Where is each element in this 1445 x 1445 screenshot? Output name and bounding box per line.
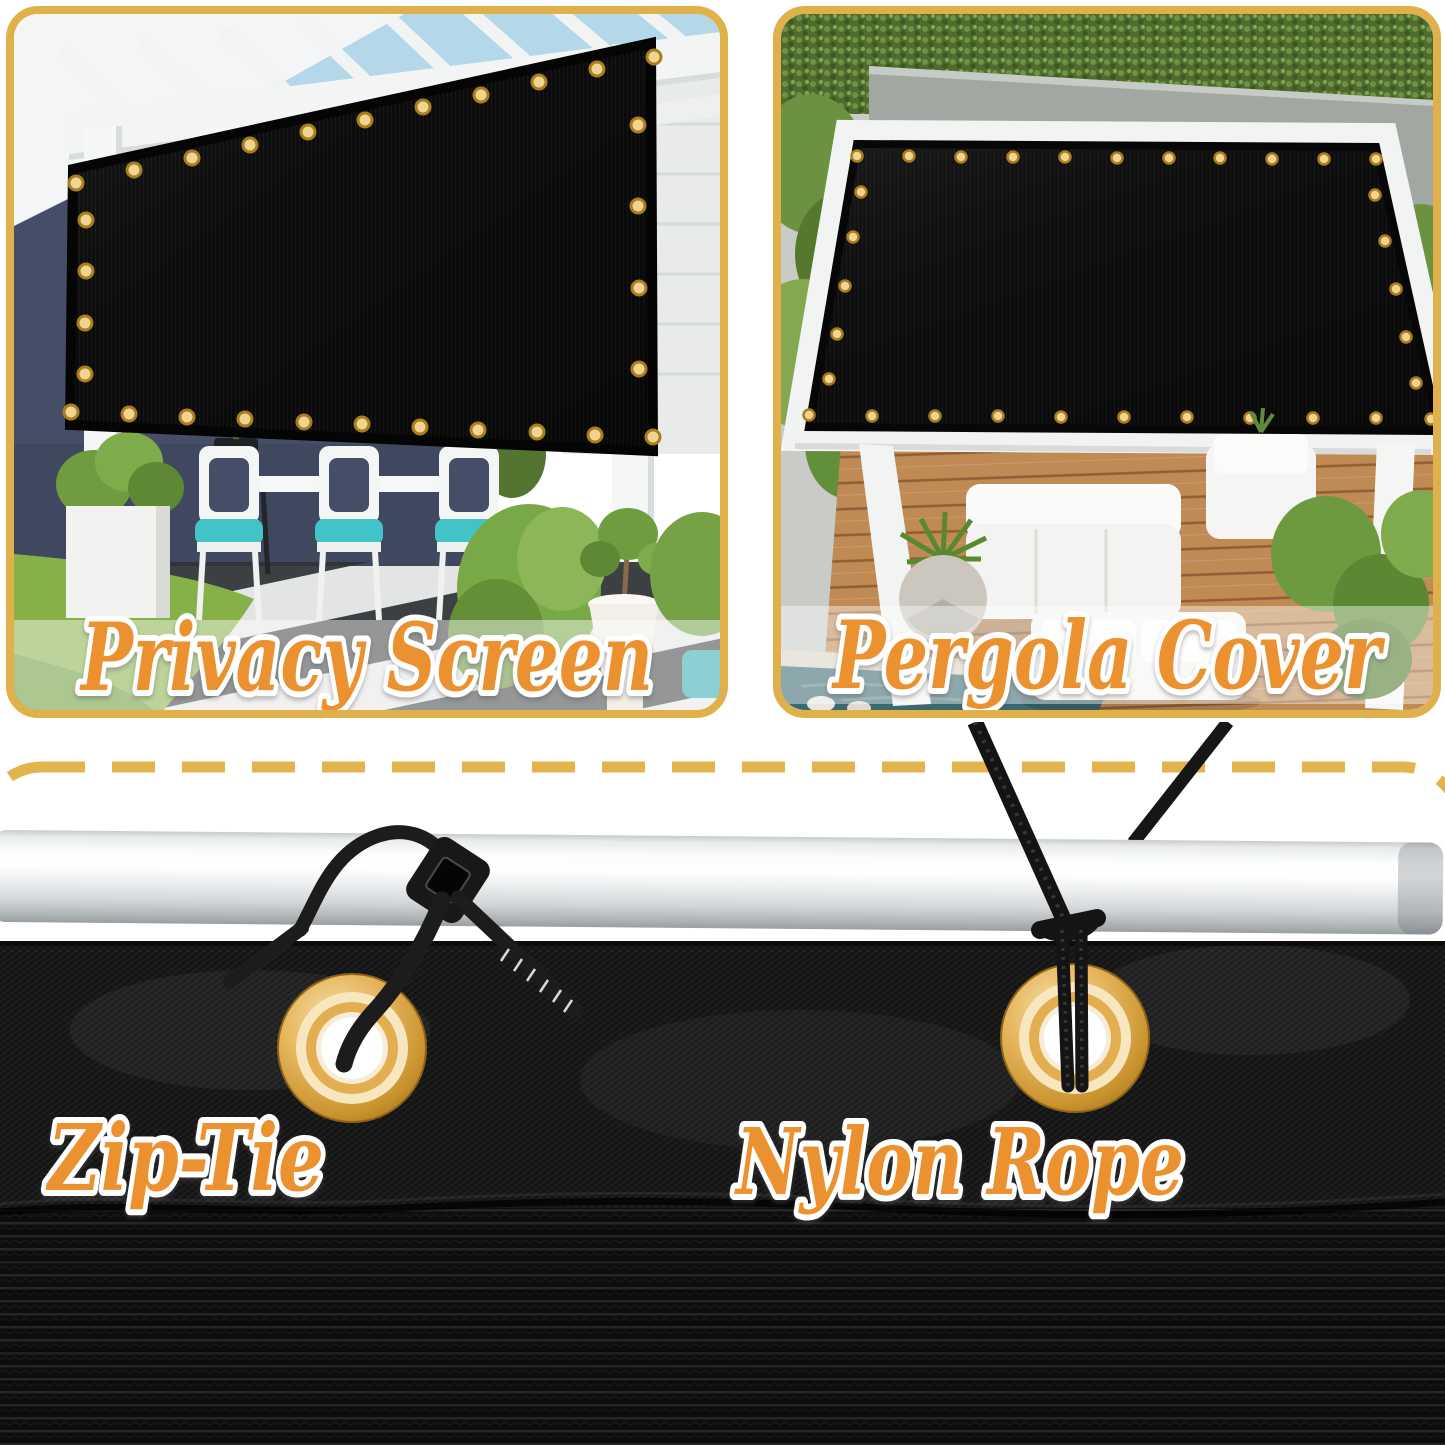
privacy-screen-panel: Privacy Screen [6,6,728,718]
privacy-screen-label: Privacy Screen [79,603,653,710]
infographic-canvas: Privacy Screen [0,0,1445,1445]
pergola-cover-panel: Pergola Cover [773,6,1441,718]
pergola-cover-photo: Pergola Cover [781,14,1433,710]
nylon-rope-back-strand [1133,722,1228,843]
installation-detail-photo: Zip-Tie Nylon Rope [0,722,1445,1445]
nylon-rope-label: Nylon Rope [734,1108,1184,1216]
zip-tie-label: Zip-Tie [45,1104,324,1212]
pergola-cover-label: Pergola Cover [831,601,1386,710]
privacy-screen-photo: Privacy Screen [14,14,720,710]
mounting-pole [0,830,1443,935]
pergola-cover-fabric [809,144,1433,431]
